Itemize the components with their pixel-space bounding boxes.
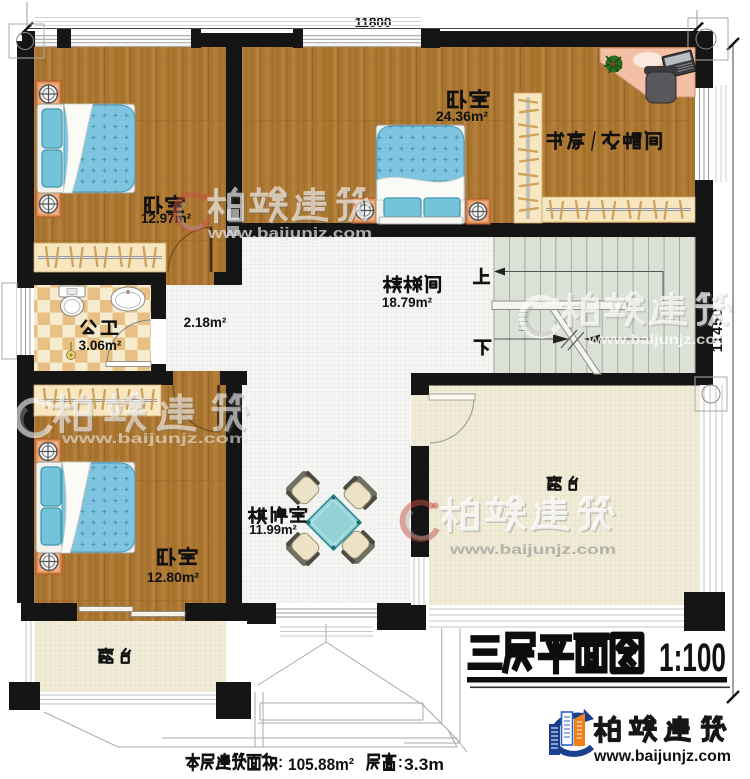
svg-text:www.baijunjz.com: www.baijunjz.com [207, 225, 372, 242]
svg-text:3.06m²: 3.06m² [79, 338, 122, 353]
svg-text:18.79m²: 18.79m² [382, 295, 433, 310]
svg-text:24.36m²: 24.36m² [436, 108, 488, 124]
svg-text:105.88m²: 105.88m² [288, 755, 354, 774]
svg-text:1:100: 1:100 [659, 636, 726, 680]
svg-text:www.baijunjz.com: www.baijunjz.com [60, 430, 248, 446]
svg-text:12.80m²: 12.80m² [147, 569, 199, 585]
svg-text:3.3m: 3.3m [404, 755, 444, 774]
svg-text:www.baijunjz.com: www.baijunjz.com [587, 331, 730, 347]
svg-text:2.18m²: 2.18m² [184, 315, 227, 330]
svg-text:11.99m²: 11.99m² [249, 522, 297, 537]
svg-text:www.baijunjz.com: www.baijunjz.com [449, 541, 616, 557]
svg-text:www.baijunjz.com: www.baijunjz.com [593, 748, 731, 765]
